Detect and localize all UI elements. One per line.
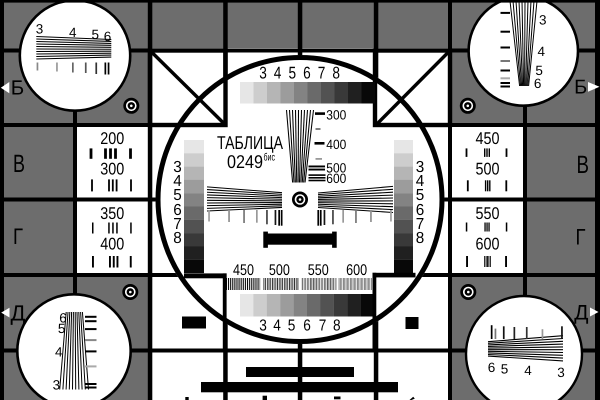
svg-text:Д: Д bbox=[11, 301, 26, 326]
svg-text:6: 6 bbox=[488, 360, 496, 375]
svg-text:3: 3 bbox=[36, 21, 44, 36]
svg-text:3: 3 bbox=[539, 13, 547, 28]
svg-text:3: 3 bbox=[259, 318, 267, 335]
svg-text:ТАБЛИЦА: ТАБЛИЦА bbox=[217, 132, 283, 153]
svg-text:200: 200 bbox=[100, 129, 124, 148]
svg-text:5: 5 bbox=[92, 27, 100, 42]
svg-text:бис: бис bbox=[264, 151, 276, 163]
svg-text:4: 4 bbox=[273, 318, 281, 335]
svg-text:300: 300 bbox=[100, 160, 124, 179]
svg-text:400: 400 bbox=[326, 137, 346, 152]
svg-text:6: 6 bbox=[303, 64, 311, 83]
svg-text:6: 6 bbox=[104, 29, 112, 44]
svg-text:500: 500 bbox=[269, 262, 290, 279]
svg-text:В: В bbox=[13, 150, 25, 178]
svg-text:Б: Б bbox=[574, 77, 587, 99]
svg-text:Г: Г bbox=[13, 224, 23, 249]
svg-text:5: 5 bbox=[289, 64, 297, 83]
svg-text:5: 5 bbox=[501, 362, 509, 377]
svg-text:4: 4 bbox=[69, 25, 77, 40]
svg-text:600: 600 bbox=[476, 235, 500, 254]
svg-text:550: 550 bbox=[476, 204, 500, 223]
svg-text:7: 7 bbox=[318, 64, 326, 83]
svg-text:400: 400 bbox=[100, 235, 124, 254]
svg-text:300: 300 bbox=[326, 107, 346, 122]
svg-text:5: 5 bbox=[58, 321, 66, 336]
svg-text:6: 6 bbox=[534, 76, 542, 91]
svg-text:550: 550 bbox=[308, 262, 329, 279]
svg-text:4: 4 bbox=[274, 64, 282, 83]
svg-text:8: 8 bbox=[332, 64, 340, 83]
svg-text:4: 4 bbox=[55, 345, 63, 360]
svg-text:3: 3 bbox=[53, 378, 61, 393]
svg-text:8: 8 bbox=[416, 230, 425, 247]
svg-text:0249: 0249 bbox=[227, 151, 263, 172]
svg-text:4: 4 bbox=[524, 363, 532, 378]
svg-text:8: 8 bbox=[173, 230, 182, 247]
svg-text:8: 8 bbox=[333, 318, 341, 335]
svg-text:3: 3 bbox=[259, 64, 267, 83]
svg-text:Б: Б bbox=[11, 77, 24, 100]
svg-text:3: 3 bbox=[557, 365, 565, 380]
svg-text:7: 7 bbox=[319, 318, 327, 335]
svg-text:450: 450 bbox=[233, 262, 254, 279]
svg-text:4: 4 bbox=[537, 44, 545, 59]
svg-text:В: В bbox=[577, 151, 590, 179]
svg-text:6: 6 bbox=[303, 318, 311, 335]
svg-text:450: 450 bbox=[476, 129, 500, 148]
svg-text:500: 500 bbox=[476, 160, 500, 179]
svg-text:Д: Д bbox=[574, 302, 588, 325]
svg-text:350: 350 bbox=[100, 204, 124, 223]
svg-text:5: 5 bbox=[288, 318, 296, 335]
svg-text:600: 600 bbox=[326, 171, 346, 186]
svg-text:600: 600 bbox=[346, 262, 367, 279]
svg-text:Г: Г bbox=[576, 225, 586, 250]
